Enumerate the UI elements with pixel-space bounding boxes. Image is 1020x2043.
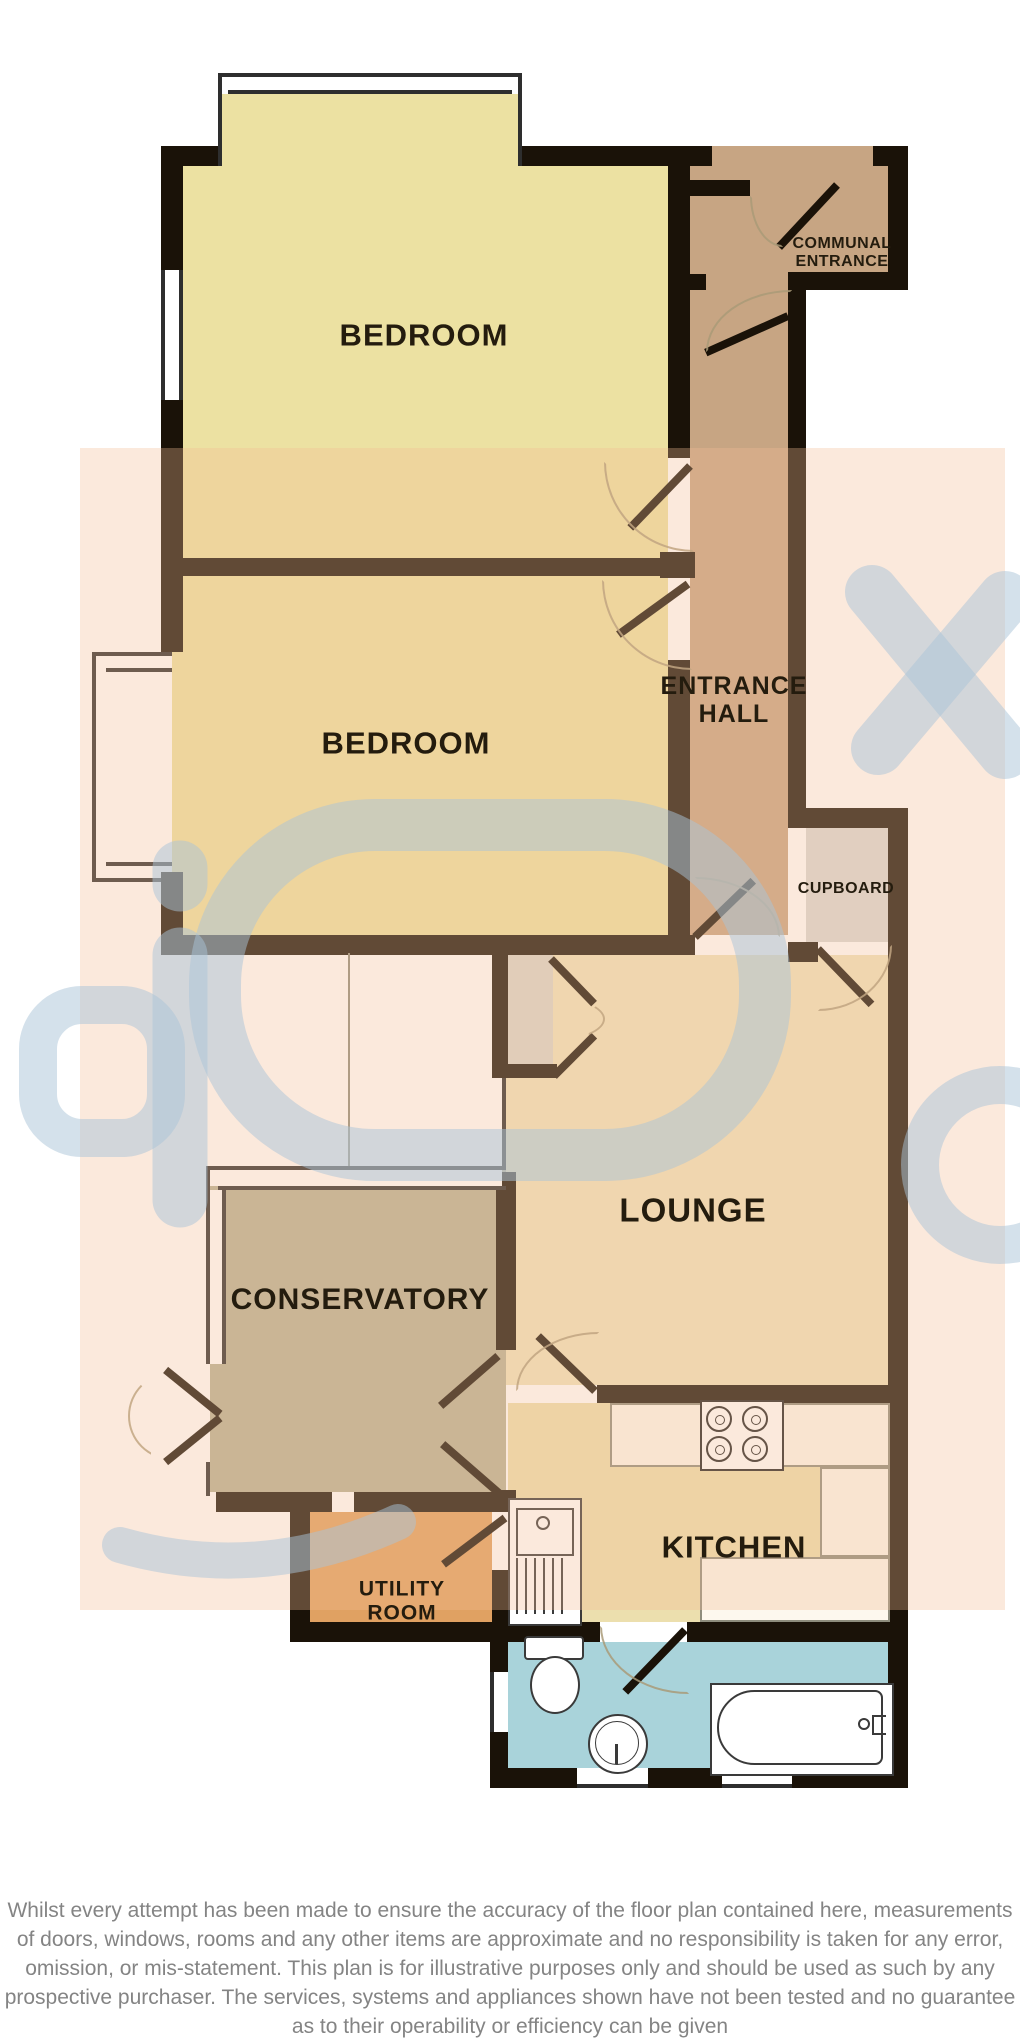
hob-burner-icon (742, 1406, 768, 1432)
wall-vestibule-cap (507, 1064, 557, 1078)
entrance-hall-label: ENTRANCE HALL (661, 672, 808, 728)
sink-tap-icon (536, 1516, 550, 1530)
wall-communal-inner-stub (690, 180, 750, 196)
wall-cupboard-bottom (788, 942, 818, 962)
bath-spout-icon (872, 1715, 886, 1735)
wall-left-top (161, 146, 183, 270)
bedroom1-bay-floor (222, 94, 518, 170)
lounge-floor (506, 955, 890, 1385)
conservatory-bottom-window-slot (332, 1492, 354, 1512)
disclaimer-line: prospective purchaser. The services, sys… (0, 1983, 1020, 2012)
door-arc-conservatory-left (128, 1372, 172, 1460)
conservatory-left-glazing-gap (210, 1190, 222, 1364)
wall-bathroom-bottom-1 (490, 1768, 577, 1788)
disclaimer-line: Whilst every attempt has been made to en… (0, 1896, 1020, 1925)
bedroom1-floor (183, 166, 668, 558)
line-vestibule-passage (502, 1078, 506, 1170)
basin (588, 1714, 648, 1774)
bedroom2-window-sill-top2 (106, 668, 172, 672)
sink-drainer (516, 1558, 570, 1614)
kitchen-label: KITCHEN (662, 1531, 807, 1566)
utility-room-label: UTILITY ROOM (359, 1577, 445, 1624)
sink-bowl (516, 1508, 574, 1556)
bathroom-window-line-right (722, 1784, 792, 1788)
bay-window-left-line (218, 73, 222, 166)
bedroom2-window-gap (96, 652, 172, 882)
hob-burner-icon (706, 1436, 732, 1462)
conservatory-label: CONSERVATORY (231, 1283, 490, 1317)
floorplan-canvas: BEDROOM COMMUNAL ENTRANCE BEDROOM ENTRAN… (0, 0, 1020, 2043)
sink-unit (508, 1498, 582, 1626)
hob-burner-icon (706, 1406, 732, 1432)
bedroom2-window-sill-top1 (96, 652, 172, 656)
bedroom2-window-outer-line (92, 652, 96, 882)
wall-top-right-of-bay (522, 146, 712, 166)
wall-conservatory-bottom-left (216, 1492, 332, 1512)
wall-utility-bottom (290, 1622, 508, 1642)
bedroom1-window-inner-line (179, 270, 183, 400)
bay-window-outer-line (218, 73, 522, 77)
hob-burner-icon (742, 1436, 768, 1462)
basin-tap-icon (615, 1744, 618, 1764)
vestibule-lobby (508, 955, 553, 1076)
wall-left-mid (161, 400, 183, 560)
wall-bedrooms-right-upper (668, 166, 690, 458)
bedroom2-label: BEDROOM (322, 727, 491, 762)
cupboard-label: CUPBOARD (798, 880, 894, 898)
disclaimer: Whilst every attempt has been made to en… (0, 1896, 1020, 2043)
conservatory-left-inner-line (222, 1190, 226, 1364)
lounge-label: LOUNGE (619, 1193, 766, 1230)
counter-right-run (820, 1467, 890, 1557)
bedroom1-window-outer-line (161, 270, 165, 400)
conservatory-top-glazing-gap (210, 1170, 502, 1186)
communal-entrance-label: COMMUNAL ENTRANCE (792, 235, 891, 271)
wall-utility-right-lower (492, 1570, 508, 1622)
bathroom-window-line-left (577, 1784, 648, 1788)
hob (700, 1400, 784, 1471)
vestibule-outside (348, 955, 492, 1168)
wall-vestibule-right (492, 935, 508, 1078)
disclaimer-line: of doors, windows, rooms and any other i… (0, 1925, 1020, 1954)
conservatory-left-lower-line (206, 1462, 210, 1496)
bath-tub (717, 1690, 883, 1765)
wall-bathroom-top-right (687, 1622, 890, 1642)
entrance-hall-floor (690, 272, 788, 935)
wall-divider-end-block (660, 552, 695, 578)
wall-hall-stub (690, 274, 706, 290)
bedroom1-label: BEDROOM (340, 319, 509, 354)
bath (710, 1683, 894, 1776)
wall-nook-bottom (788, 272, 908, 290)
wall-conservatory-bottom-right (354, 1492, 516, 1512)
wall-right-outer-main (888, 808, 908, 1788)
bathroom-side-window-line (490, 1672, 494, 1732)
disclaimer-line: omission, or mis-statement. This plan is… (0, 1954, 1020, 1983)
wall-bedroom-divider (161, 558, 695, 576)
bedroom2-window-sill-bottom1 (106, 862, 172, 866)
disclaimer-line: as to their operability or efficiency ca… (0, 2012, 1020, 2041)
wall-bedroom2-bottom (161, 935, 695, 955)
wall-corridor-right (788, 272, 806, 810)
conservatory-floor (210, 1170, 506, 1492)
line-vestibule-left (348, 953, 350, 1170)
conservatory-top-inner-line (218, 1186, 506, 1190)
bath-tap-icon (858, 1718, 870, 1730)
counter-bottom-run (700, 1557, 890, 1622)
wall-conservatory-right (496, 1172, 516, 1350)
toilet-bowl (530, 1656, 580, 1714)
bay-window-glass-line (228, 90, 512, 94)
